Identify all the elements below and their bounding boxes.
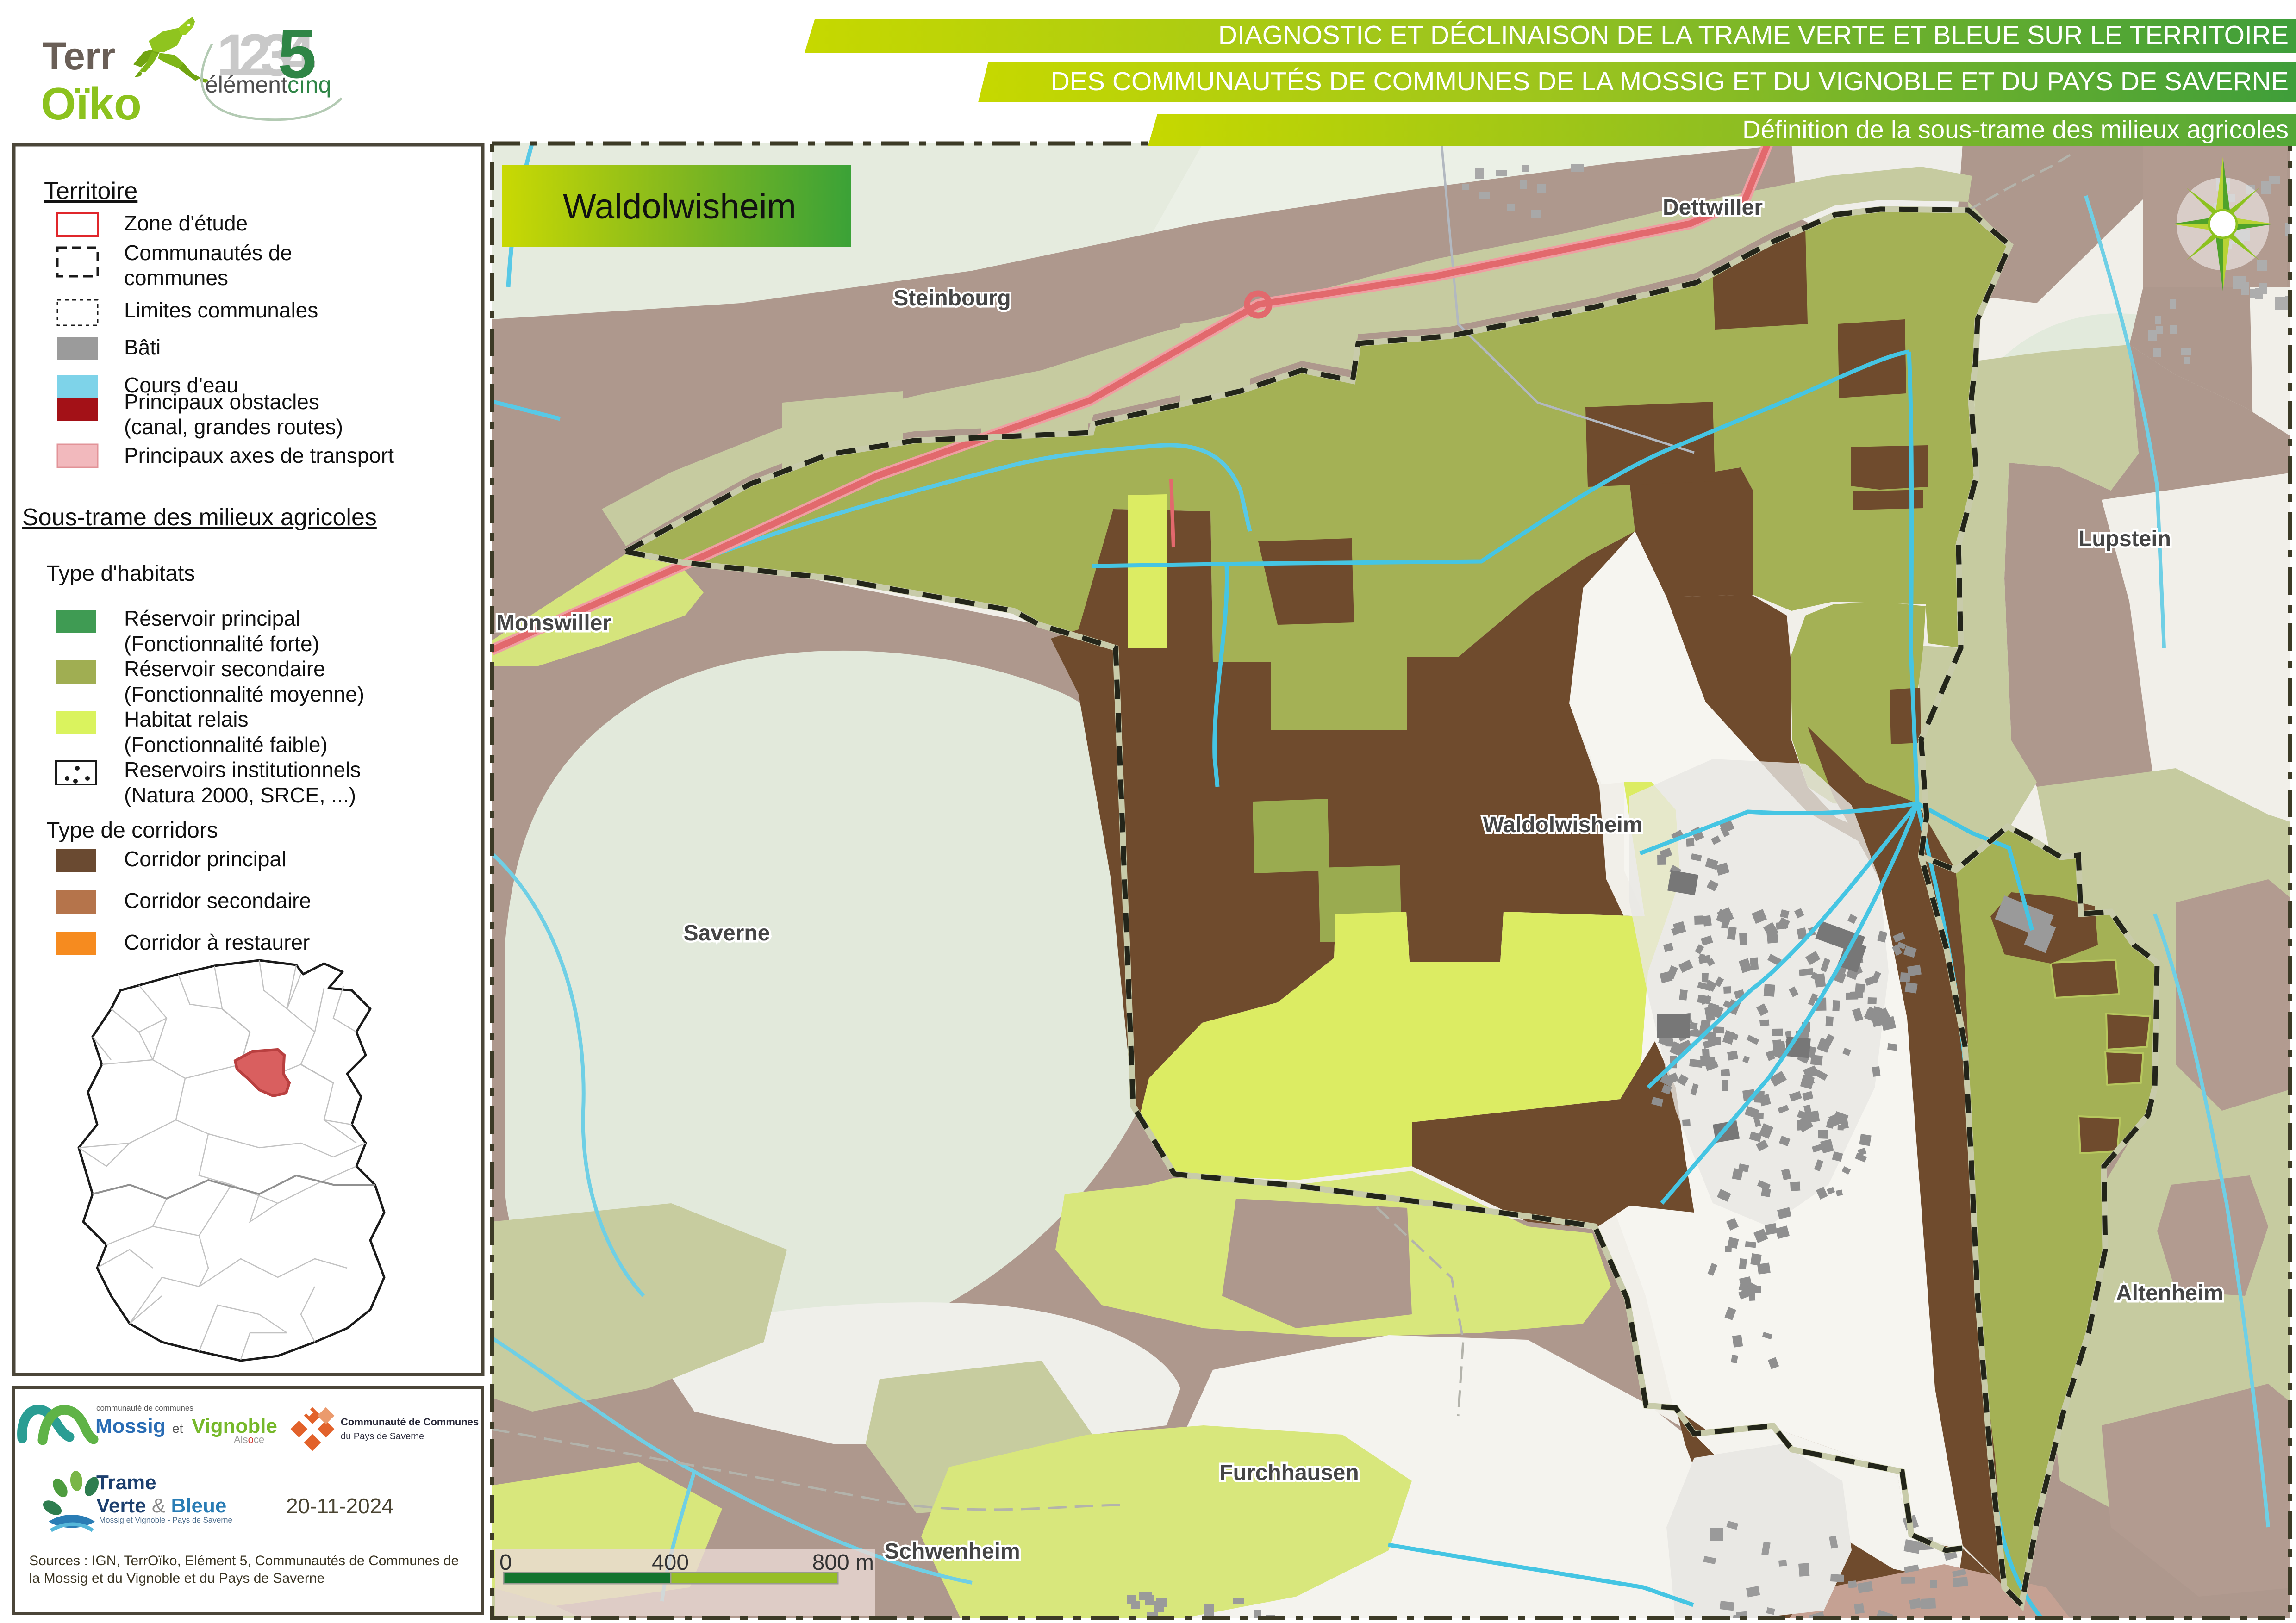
svg-text:la Mossig et du Vignoble et du: la Mossig et du Vignoble et du Pays de S… — [29, 1571, 324, 1586]
svg-text:du Pays de Saverne: du Pays de Saverne — [341, 1431, 424, 1442]
svg-text:Verte & Bleue: Verte & Bleue — [96, 1494, 226, 1517]
svg-text:Dettwiller: Dettwiller — [1663, 195, 1763, 220]
svg-text:Territoire: Territoire — [44, 178, 137, 205]
svg-text:DIAGNOSTIC ET DÉCLINAISON DE L: DIAGNOSTIC ET DÉCLINAISON DE LA TRAME VE… — [1218, 20, 2289, 50]
svg-text:400: 400 — [652, 1550, 689, 1575]
svg-text:Corridor principal: Corridor principal — [124, 847, 286, 871]
svg-text:Waldolwisheim: Waldolwisheim — [563, 187, 796, 226]
svg-text:Altenheim: Altenheim — [2116, 1281, 2223, 1306]
svg-text:Zone d'étude: Zone d'étude — [124, 211, 248, 235]
svg-text:Corridor secondaire: Corridor secondaire — [124, 889, 311, 913]
svg-text:Waldolwisheim: Waldolwisheim — [1483, 813, 1643, 837]
svg-text:Steinbourg: Steinbourg — [893, 286, 1011, 311]
svg-text:20-11-2024: 20-11-2024 — [286, 1494, 393, 1518]
svg-text:DES COMMUNAUTÉS DE COMMUNES DE: DES COMMUNAUTÉS DE COMMUNES DE LA MOSSIG… — [1051, 67, 2289, 96]
svg-text:(canal, grandes routes): (canal, grandes routes) — [124, 415, 343, 439]
svg-text:communauté de communes: communauté de communes — [96, 1404, 193, 1412]
svg-text:Oïko: Oïko — [41, 78, 142, 129]
svg-text:(Fonctionnalité forte): (Fonctionnalité forte) — [124, 632, 319, 656]
svg-text:Sous-trame des milieux agricol: Sous-trame des milieux agricoles — [22, 504, 377, 531]
svg-text:Réservoir principal: Réservoir principal — [124, 606, 300, 630]
svg-text:Communauté de Communes: Communauté de Communes — [341, 1416, 479, 1428]
svg-text:Lupstein: Lupstein — [2078, 527, 2171, 551]
svg-text:Sources : IGN, TerrOïko, Eléme: Sources : IGN, TerrOïko, Elément 5, Comm… — [29, 1553, 459, 1568]
svg-text:élémentcınq: élémentcınq — [205, 72, 331, 98]
svg-text:Type de corridors: Type de corridors — [46, 818, 218, 843]
svg-text:Principaux axes de transport: Principaux axes de transport — [124, 443, 394, 467]
svg-text:Type d'habitats: Type d'habitats — [46, 561, 195, 586]
svg-text:Saverne: Saverne — [684, 921, 770, 945]
svg-text:et: et — [172, 1421, 183, 1436]
svg-text:Alsoce: Alsoce — [234, 1434, 264, 1445]
svg-text:Limites communales: Limites communales — [124, 298, 318, 322]
svg-text:Trame: Trame — [96, 1471, 156, 1494]
svg-text:Furchhausen: Furchhausen — [1219, 1461, 1359, 1485]
svg-text:800 m: 800 m — [812, 1550, 874, 1575]
svg-text:Réservoir secondaire: Réservoir secondaire — [124, 657, 325, 681]
svg-text:Principaux obstacles: Principaux obstacles — [124, 390, 319, 414]
svg-text:Corridor à restaurer: Corridor à restaurer — [124, 930, 310, 954]
svg-text:Mossig: Mossig — [95, 1415, 166, 1437]
svg-text:Bâti: Bâti — [124, 335, 161, 359]
svg-text:communes: communes — [124, 266, 228, 290]
svg-text:(Fonctionnalité faible): (Fonctionnalité faible) — [124, 733, 328, 757]
svg-text:Reservoirs institutionnels: Reservoirs institutionnels — [124, 758, 361, 782]
svg-text:Habitat relais: Habitat relais — [124, 707, 248, 731]
svg-text:Communautés de: Communautés de — [124, 241, 292, 265]
svg-text:Schwenheim: Schwenheim — [884, 1539, 1020, 1564]
svg-text:0: 0 — [499, 1550, 512, 1575]
svg-text:Monswiller: Monswiller — [496, 611, 611, 635]
svg-text:(Fonctionnalité moyenne): (Fonctionnalité moyenne) — [124, 682, 364, 706]
svg-text:Définition de la sous-trame de: Définition de la sous-trame des milieux … — [1742, 115, 2289, 144]
svg-text:Mossig et Vignoble - Pays de S: Mossig et Vignoble - Pays de Saverne — [99, 1516, 232, 1524]
svg-text:Terr: Terr — [43, 34, 115, 78]
svg-text:(Natura 2000, SRCE, ...): (Natura 2000, SRCE, ...) — [124, 783, 356, 807]
